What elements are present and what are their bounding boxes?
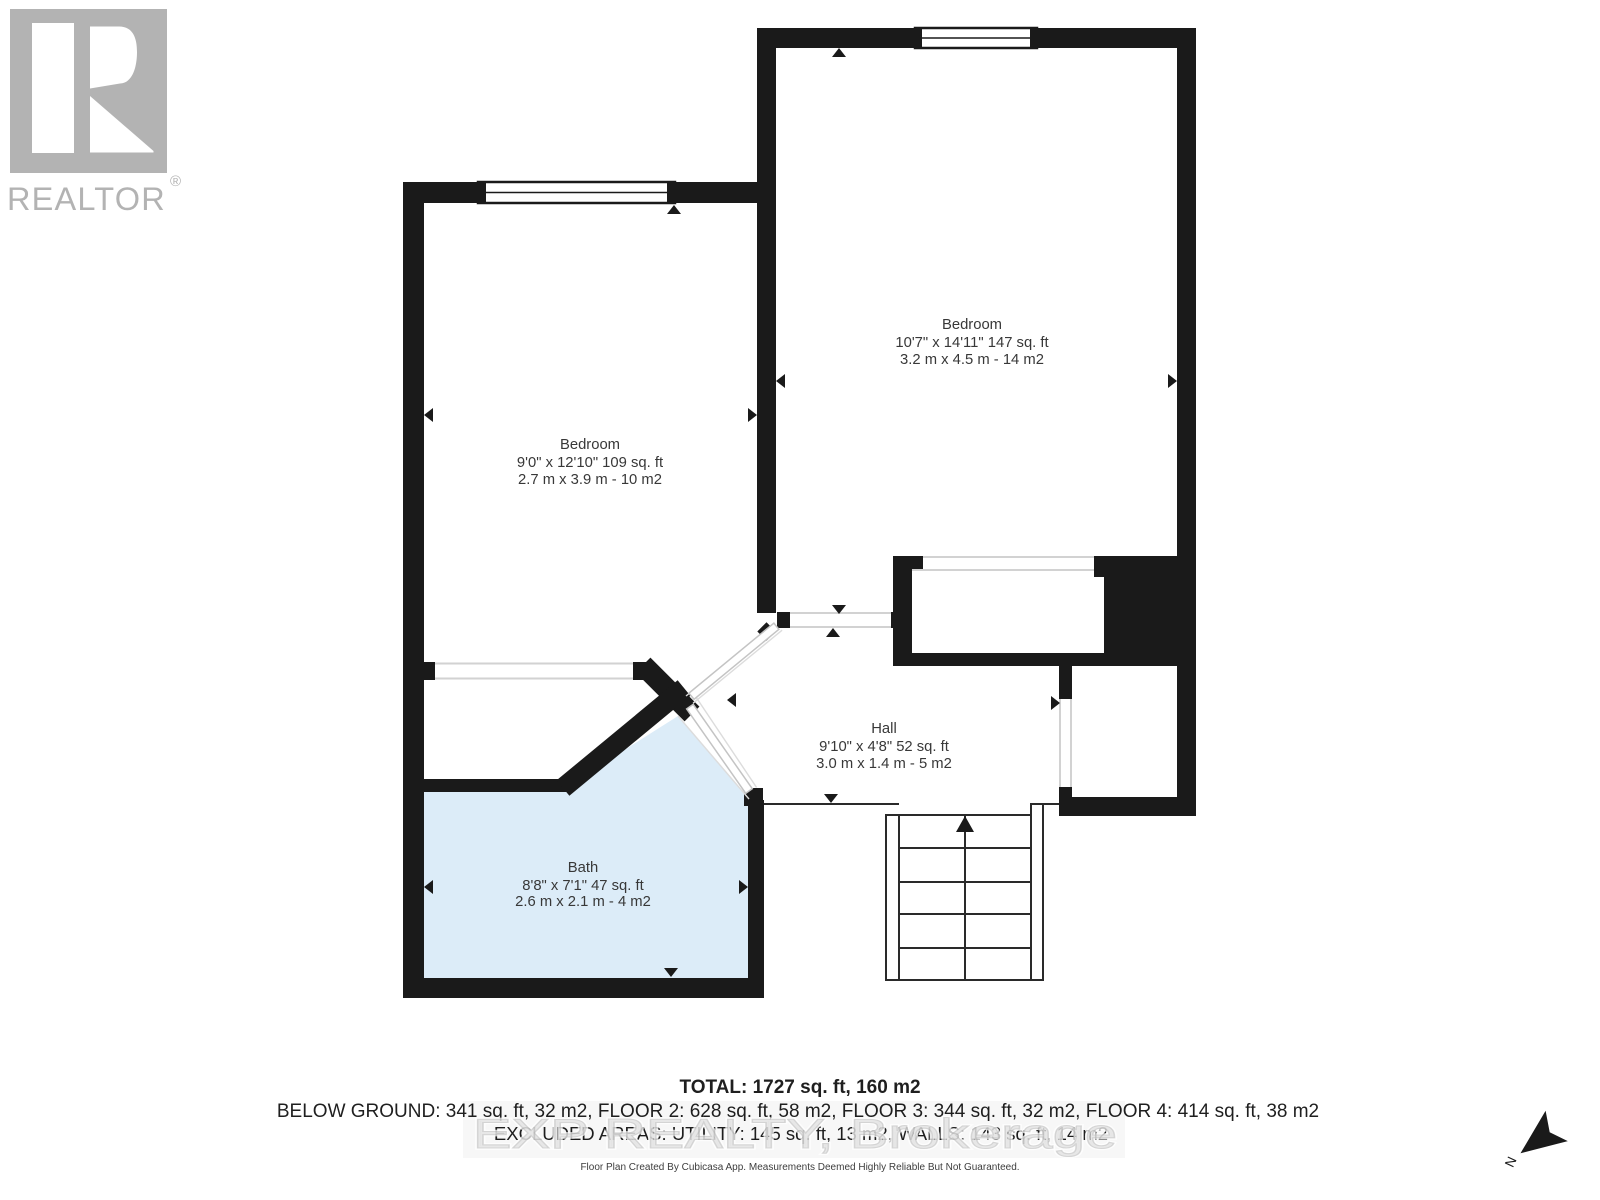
svg-text:REALTOR: REALTOR	[7, 181, 166, 217]
svg-text:Bedroom: Bedroom	[560, 437, 620, 453]
svg-text:Bedroom: Bedroom	[942, 317, 1002, 333]
svg-text:3.2 m x 4.5 m - 14 m2: 3.2 m x 4.5 m - 14 m2	[900, 352, 1044, 368]
svg-text:3.0 m x 1.4 m - 5 m2: 3.0 m x 1.4 m - 5 m2	[816, 756, 952, 772]
svg-text:Bath: Bath	[568, 860, 598, 876]
svg-text:TOTAL: 1727 sq. ft, 160 m2: TOTAL: 1727 sq. ft, 160 m2	[679, 1077, 920, 1098]
svg-text:10'7" x 14'11" 147 sq. ft: 10'7" x 14'11" 147 sq. ft	[895, 335, 1048, 351]
svg-text:Floor Plan Created By Cubicasa: Floor Plan Created By Cubicasa App. Meas…	[580, 1162, 1019, 1173]
svg-text:2.7 m x 3.9 m - 10 m2: 2.7 m x 3.9 m - 10 m2	[518, 472, 662, 488]
svg-text:8'8" x 7'1" 47 sq. ft: 8'8" x 7'1" 47 sq. ft	[522, 878, 643, 894]
svg-text:EXP REALTY, Brokerage: EXP REALTY, Brokerage	[473, 1110, 1117, 1157]
svg-text:®: ®	[170, 173, 181, 190]
svg-text:2.6 m x 2.1 m - 4 m2: 2.6 m x 2.1 m - 4 m2	[515, 894, 651, 910]
svg-text:N: N	[1502, 1154, 1520, 1169]
svg-text:9'10" x 4'8" 52 sq. ft: 9'10" x 4'8" 52 sq. ft	[819, 739, 949, 755]
svg-text:9'0" x 12'10" 109 sq. ft: 9'0" x 12'10" 109 sq. ft	[517, 455, 663, 471]
svg-text:Hall: Hall	[871, 721, 897, 737]
